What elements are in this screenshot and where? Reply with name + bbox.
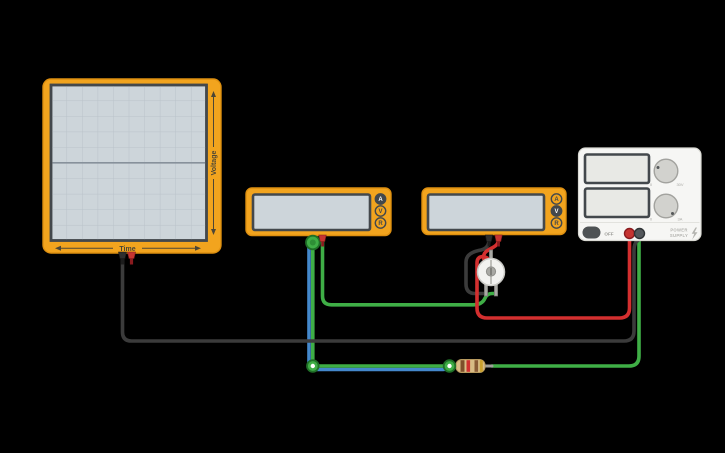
- power-supply-voltage-display: [585, 155, 649, 184]
- mode-button-resistance-label: R: [378, 221, 383, 227]
- multimeter-voltmeter-display: [428, 195, 544, 231]
- wire-black-oscilloscope-ground[interactable]: [123, 240, 639, 341]
- current-knob-max-label: 3A: [678, 217, 683, 222]
- oscilloscope-black-terminal[interactable]: [119, 252, 127, 265]
- mode-button-amps-label: A: [554, 197, 559, 203]
- power-supply: 0 30V 0 3A OFF POWER SUPPLY: [579, 148, 702, 241]
- oscilloscope-red-terminal[interactable]: [128, 252, 136, 265]
- power-supply-positive-terminal[interactable]: [625, 229, 635, 239]
- resistor: [450, 360, 492, 373]
- mode-button-amps-label: A: [378, 197, 383, 203]
- power-supply-negative-terminal[interactable]: [635, 229, 645, 239]
- power-supply-voltage-knob[interactable]: [654, 159, 678, 183]
- multimeter-ammeter-display: [253, 195, 370, 231]
- resistor-band-3: [475, 360, 479, 372]
- wire-green-ammeter-to-trimmer[interactable]: [323, 241, 496, 305]
- multimeter-voltmeter: A V R: [422, 188, 566, 247]
- circuit-svg: Time Voltage A V R: [0, 0, 725, 453]
- mode-button-volts-label: V: [378, 209, 382, 215]
- power-button-label: OFF: [604, 231, 613, 236]
- power-button[interactable]: [583, 227, 601, 239]
- circuit-canvas[interactable]: Time Voltage A V R: [0, 0, 725, 453]
- power-supply-current-display: [585, 189, 649, 218]
- multimeter-ammeter: A V R: [246, 188, 391, 249]
- resistor-band-1: [461, 360, 465, 372]
- mode-button-volts-label: V: [554, 209, 558, 215]
- resistor-band-4: [480, 360, 483, 372]
- power-supply-brand-line2: SUPPLY: [670, 233, 688, 238]
- wire-blue-ammeter-to-junction[interactable]: [309, 246, 450, 370]
- multimeter-ammeter-green-terminal[interactable]: [306, 236, 320, 250]
- oscilloscope: Time Voltage: [43, 79, 221, 265]
- junction-node-left[interactable]: [307, 360, 319, 372]
- junction-node-resistor[interactable]: [444, 360, 456, 372]
- voltage-knob-max-label: 30V: [676, 182, 683, 187]
- wires: [123, 238, 640, 370]
- power-supply-brand-line1: POWER: [670, 228, 687, 233]
- voltage-axis-label: Voltage: [211, 151, 218, 176]
- power-supply-current-knob[interactable]: [654, 194, 678, 218]
- wire-green-powersupply-negative[interactable]: [492, 238, 639, 366]
- resistor-band-2: [467, 360, 471, 372]
- mode-button-resistance-label: R: [554, 221, 559, 227]
